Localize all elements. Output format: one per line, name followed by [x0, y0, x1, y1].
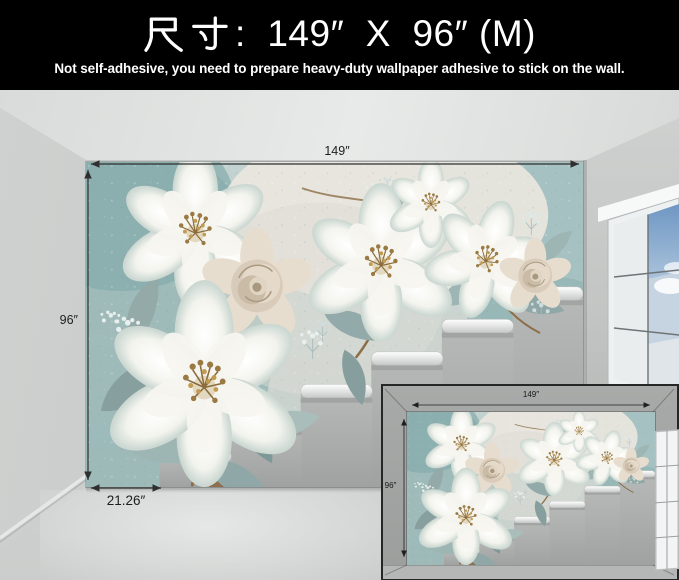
inset-width-dimension-line — [407, 400, 655, 410]
cjk-chi-icon — [143, 12, 186, 55]
header-banner: 尺寸 : 149″ X 96″ (M) Not self-adhesive, y… — [0, 0, 679, 90]
adhesive-note: Not self-adhesive, you need to prepare h… — [0, 61, 679, 76]
cjk-cun-icon — [189, 12, 232, 55]
window — [598, 168, 679, 408]
size-title: 尺寸 : 149″ X 96″ (M) — [0, 0, 679, 56]
height-dimension-line — [81, 166, 95, 484]
inset-preview: 149″ 96″ — [381, 384, 679, 580]
inset-height-dimension-line — [399, 414, 409, 562]
width-dimension-line — [80, 157, 590, 171]
inset-width-label: 149″ — [481, 391, 581, 399]
mural-width-label: 149″ — [287, 145, 387, 158]
baseboard — [0, 470, 90, 555]
product-image: 尺寸 : 149″ X 96″ (M) Not self-adhesive, y… — [0, 0, 679, 580]
inset-height-label: 96″ — [383, 482, 398, 490]
mural-height-label: 96″ — [38, 314, 78, 327]
size-title-text: : 149″ X 96″ (M) — [235, 15, 536, 52]
floor-depth-label: 21.26″ — [78, 494, 174, 508]
room-scene: 149″ 96″ 21.26″ 149″ 96″ — [0, 90, 679, 580]
inset-window — [655, 429, 679, 571]
inset-bevel-lines — [383, 386, 677, 578]
